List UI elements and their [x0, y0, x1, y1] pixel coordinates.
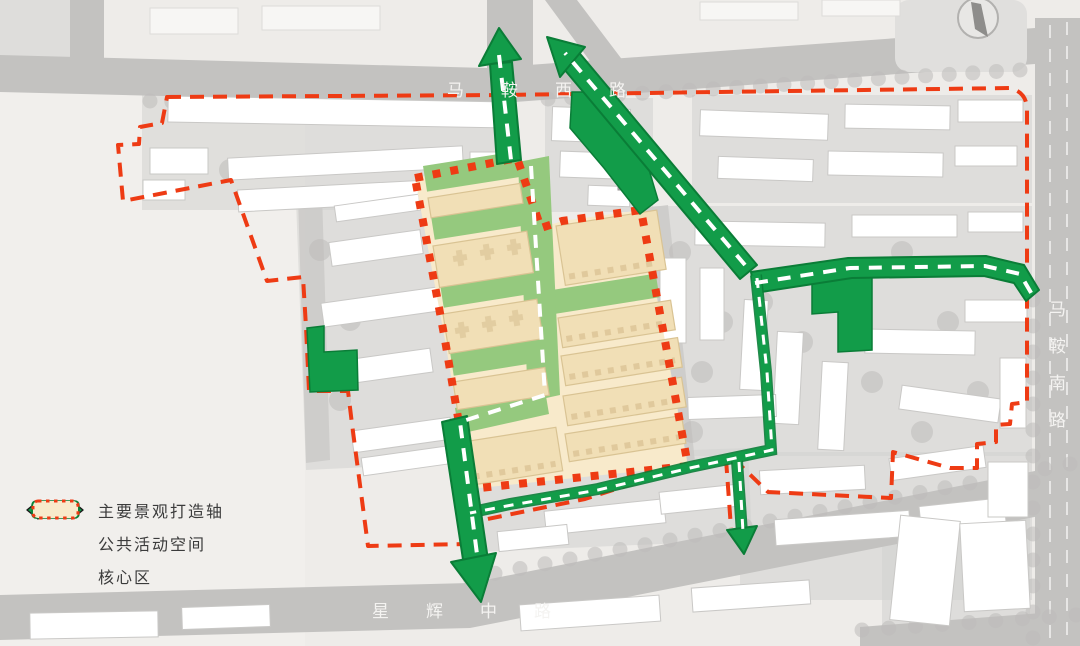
- tree: [613, 542, 628, 557]
- tree: [1026, 527, 1041, 542]
- tree: [895, 70, 910, 85]
- tree: [855, 623, 870, 638]
- building: [691, 580, 810, 612]
- building: [1000, 358, 1026, 428]
- tree: [942, 67, 957, 82]
- tree: [847, 73, 862, 88]
- tree: [1063, 457, 1078, 472]
- core-area-icon: [26, 564, 84, 588]
- tree: [513, 561, 528, 576]
- building: [960, 520, 1031, 611]
- tree: [838, 499, 853, 514]
- building: [958, 100, 1023, 122]
- road-left-stub: [70, 0, 104, 60]
- tree: [688, 528, 703, 543]
- tree: [713, 523, 728, 538]
- tree: [937, 311, 959, 333]
- tree: [143, 94, 158, 109]
- tree: [663, 533, 678, 548]
- building: [845, 104, 950, 130]
- tree: [965, 65, 980, 80]
- tree: [861, 371, 883, 393]
- public-space-icon: [26, 531, 84, 555]
- building: [955, 146, 1017, 166]
- building: [818, 361, 849, 450]
- building: [822, 0, 900, 16]
- tree: [988, 613, 1003, 628]
- legend-item-core: 核心区: [26, 564, 224, 588]
- tree: [682, 83, 697, 98]
- building: [968, 212, 1023, 232]
- tree: [963, 476, 978, 491]
- tree: [538, 556, 553, 571]
- tree: [881, 621, 896, 636]
- tree: [1026, 631, 1041, 646]
- building: [700, 2, 798, 20]
- tree: [1038, 461, 1053, 476]
- building: [150, 8, 238, 34]
- tree: [1015, 611, 1030, 626]
- tree: [1013, 63, 1028, 78]
- legend-label-core: 核心区: [98, 564, 152, 588]
- building: [30, 611, 158, 639]
- building: [865, 329, 975, 355]
- building: [965, 300, 1027, 322]
- tree: [1026, 449, 1041, 464]
- tree: [962, 615, 977, 630]
- building: [852, 215, 957, 237]
- tree: [588, 547, 603, 562]
- tree: [871, 71, 886, 86]
- building: [182, 604, 271, 629]
- legend-item-public-space: 公共活动空间: [26, 531, 224, 555]
- building: [890, 515, 961, 626]
- tree: [691, 361, 713, 383]
- tree: [563, 552, 578, 567]
- tree: [911, 421, 933, 443]
- tree: [309, 239, 331, 261]
- road-right: [1035, 18, 1080, 646]
- tree: [824, 74, 839, 89]
- building: [700, 110, 829, 140]
- building: [150, 148, 208, 174]
- planning-map: 马鞍西路 马鞍南路 星辉中路 主要景观打造轴 公共活动空间 核心区: [0, 0, 1080, 646]
- tree: [913, 485, 928, 500]
- building: [168, 96, 513, 128]
- building: [718, 156, 814, 181]
- building: [988, 462, 1028, 517]
- building: [773, 331, 804, 424]
- tree: [1042, 609, 1057, 624]
- tree: [989, 64, 1004, 79]
- building: [759, 465, 865, 494]
- legend: 主要景观打造轴 公共活动空间 核心区: [26, 498, 224, 588]
- tree: [918, 68, 933, 83]
- legend-label-public-space: 公共活动空间: [98, 531, 206, 555]
- tree: [938, 480, 953, 495]
- tree: [1026, 423, 1041, 438]
- building: [262, 6, 380, 30]
- building: [700, 268, 724, 340]
- tree: [800, 76, 815, 91]
- building: [828, 151, 943, 177]
- tree: [638, 537, 653, 552]
- legend-label-axis: 主要景观打造轴: [98, 498, 224, 522]
